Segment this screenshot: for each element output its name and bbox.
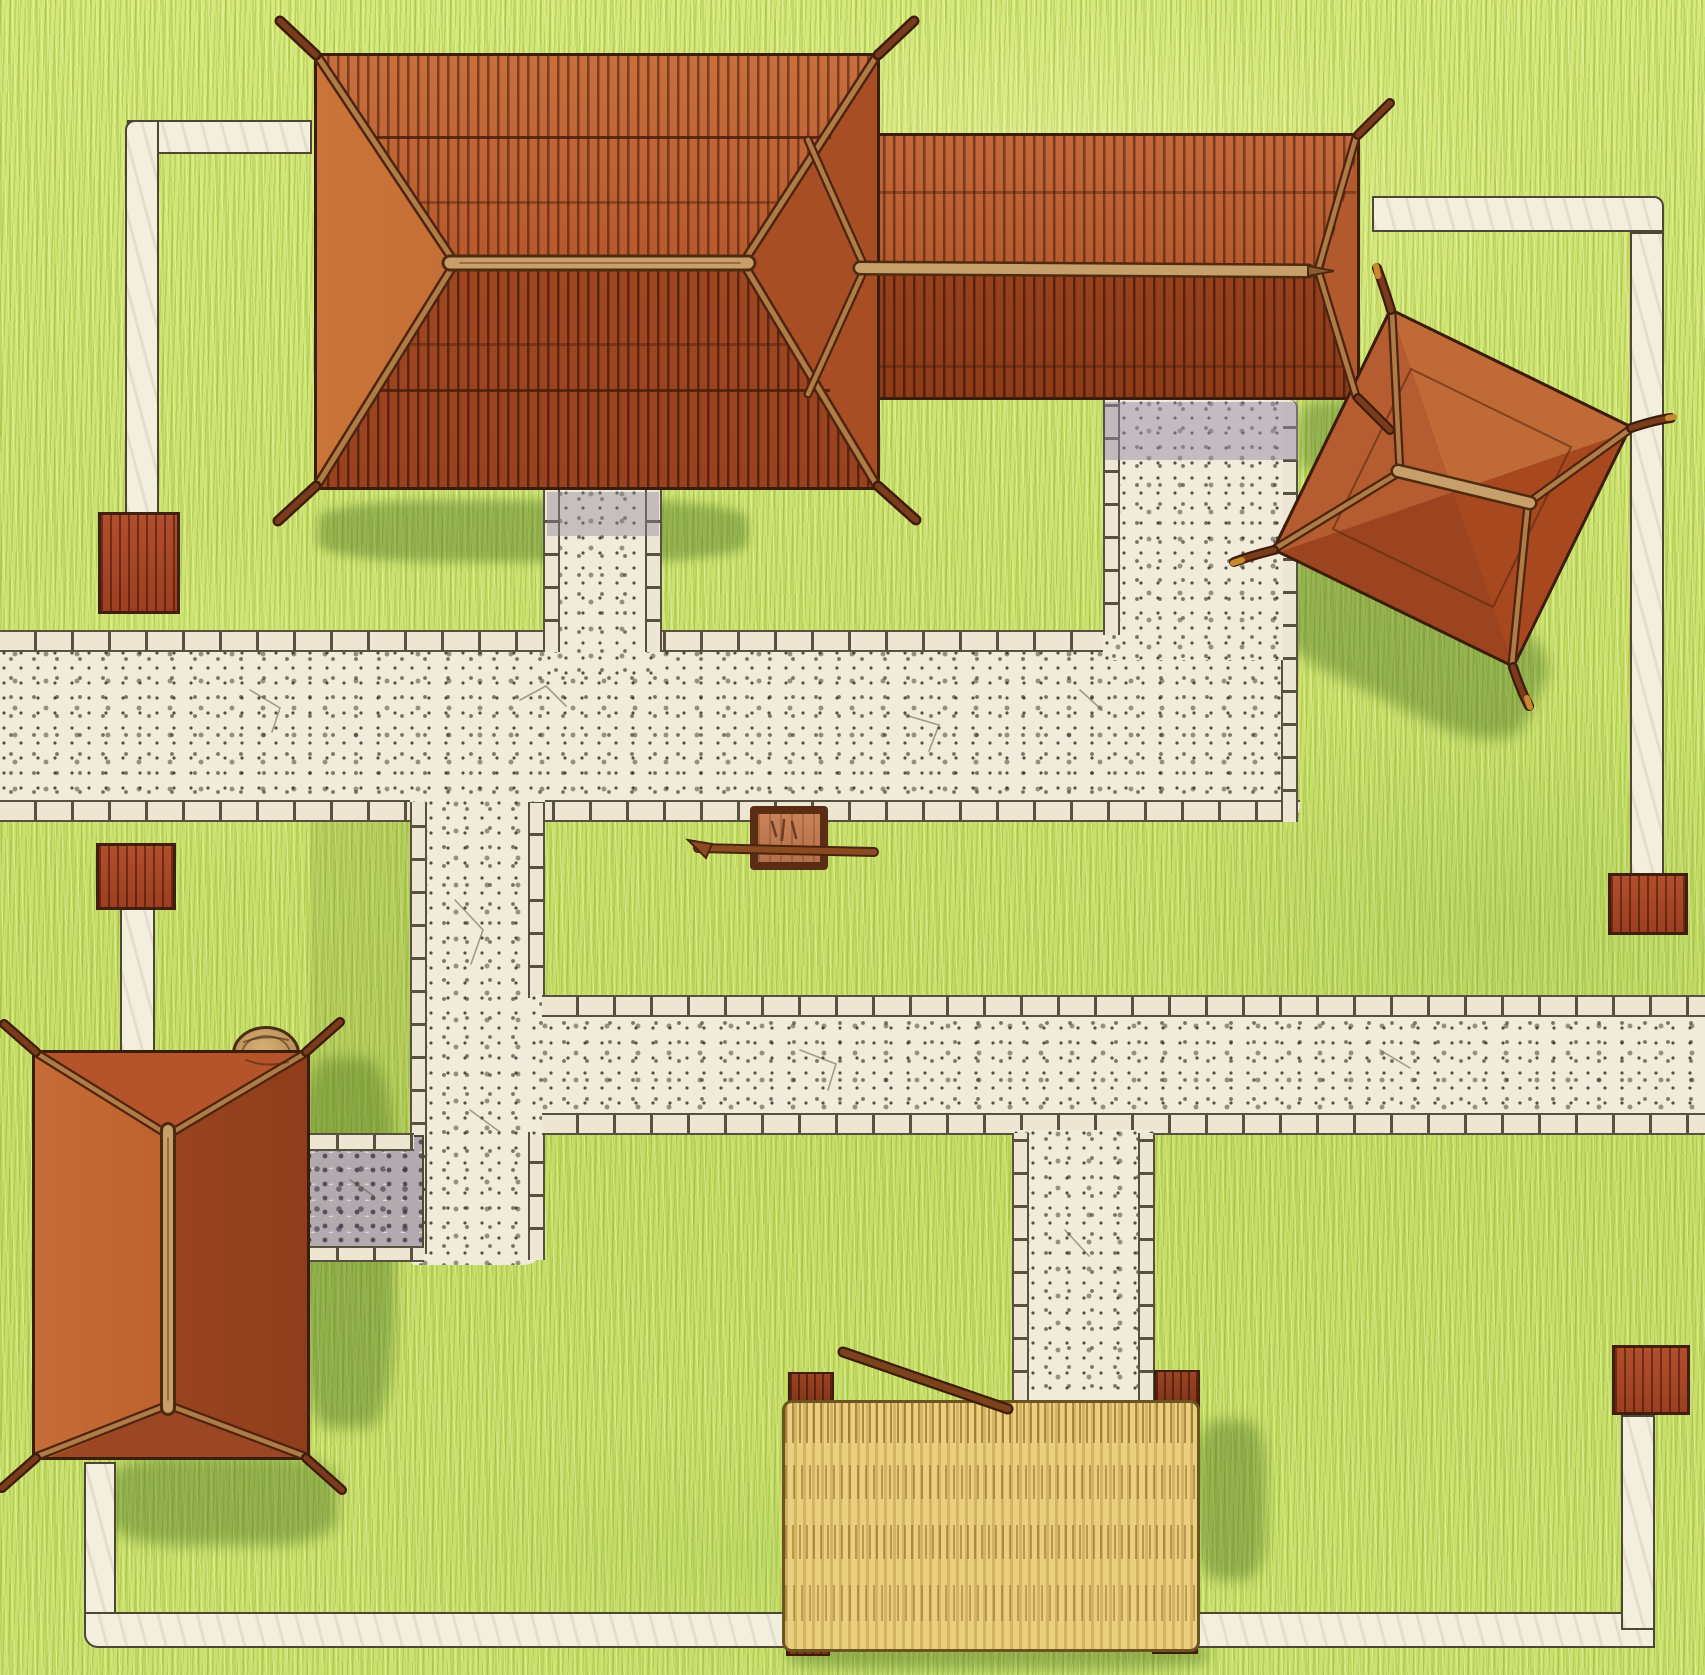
crate-grain-lines: [772, 820, 796, 840]
hay-bale-stick: [843, 1352, 1008, 1409]
wood-beams-overlay: [0, 0, 1705, 1675]
attached-house-rafters: [808, 137, 1356, 396]
large-house-rafters: [318, 57, 876, 484]
barrel-grain-lines: [244, 1037, 288, 1064]
small-house-rafters: [38, 1054, 304, 1456]
stone-crack-lines: [250, 686, 1410, 1256]
rotated-hut-rafters: [1276, 312, 1629, 664]
village-map: [0, 0, 1705, 1675]
crate-rod: [688, 840, 874, 858]
